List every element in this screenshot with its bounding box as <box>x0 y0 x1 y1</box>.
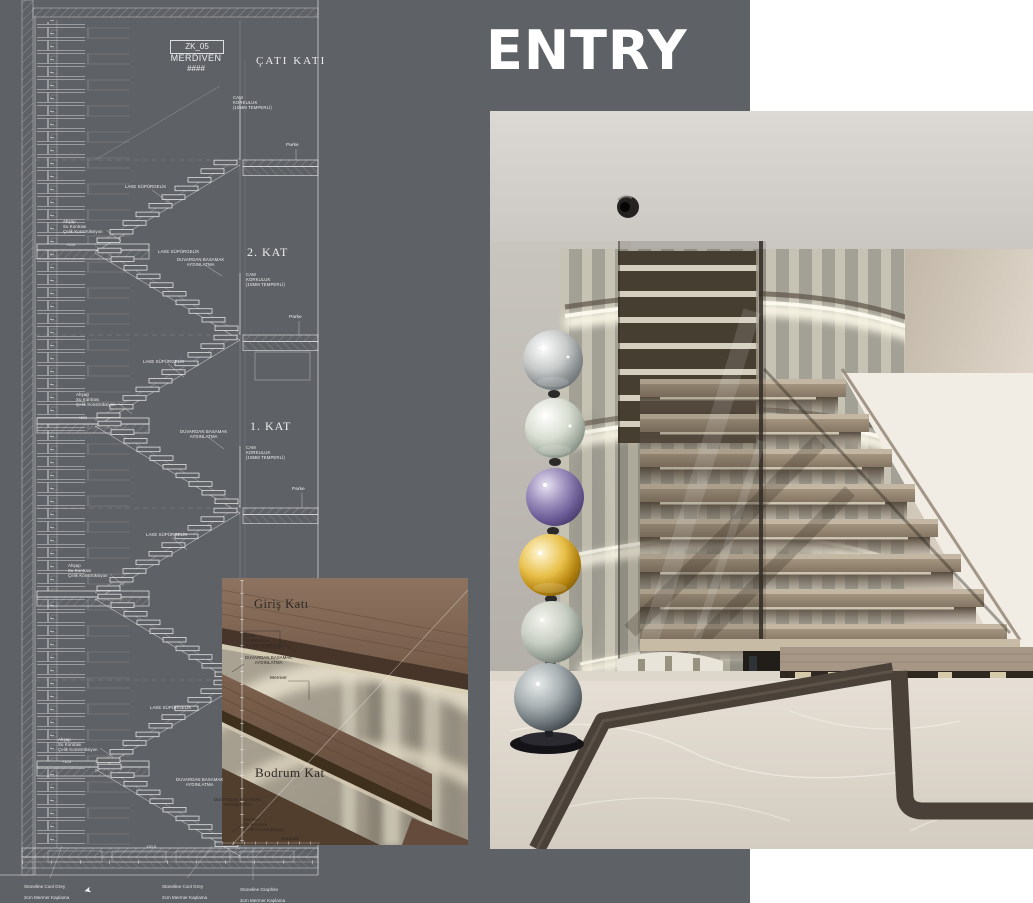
presentation-board: ENTRY ZK_05 MERDIVEN #### ÇATI KATI 2. K… <box>0 0 1033 903</box>
material-caption: Stoneline Graphite 2cm Mermer Kaplama <box>240 881 285 903</box>
annotation-glass-railing: CAM KORKULUK (10MM TEMPERLİ) <box>246 445 285 460</box>
caption-line: Stoneline Cool Grey <box>24 884 65 889</box>
caption-line: 2cm Mermer Kaplama <box>240 898 285 903</box>
page-title: ENTRY <box>486 24 688 78</box>
annotation-step-lighting: DUVARDAN BASAMAK AYDINLATMA <box>245 655 292 665</box>
annotation-step-lighting: DUVARDAN BASAMAK AYDINLATMA <box>176 777 223 787</box>
caption-line: 2cm Mermer Kaplama <box>24 895 69 900</box>
floor-label-bodrum-kat: Bodrum Kat <box>255 766 325 781</box>
material-label-seramik: Seramik <box>281 837 299 843</box>
material-label-parke: Parke <box>289 315 302 321</box>
annotation-skirting: LAKE SÜPÜRGELİK <box>143 359 184 364</box>
annotation-wood-structure: Ahşap Su Kontrası Çelik Konstrüksiyon <box>76 392 116 407</box>
annotation-step-lighting: DUVARDAN BASAMAK AYDINLATMA <box>177 257 224 267</box>
caption-line: Stoneline Graphite <box>240 887 278 892</box>
caption-line: 2cm Mermer Kaplama <box>162 895 207 900</box>
floor-label-2-kat: 2. KAT <box>247 246 288 260</box>
annotation-skirting: LAKE SÜPÜRGELİK <box>146 532 187 537</box>
elevation-mark: +103 <box>78 416 87 421</box>
annotation-wood-structure: Ahşap Su Kontrası Çelik Konstrüksiyon <box>68 563 108 578</box>
entry-staircase-photo <box>490 111 1033 849</box>
material-caption: Stoneline Cool Grey 2cm Mermer Kaplama <box>162 878 207 900</box>
annotation-glass-railing: CAM KORKULUK (10MM TEMPERLİ) <box>233 95 272 110</box>
annotation-skirting: LAKE SÜPÜRGELİK <box>150 705 191 710</box>
material-caption: Stoneline Cool Grey 2cm Mermer Kaplama <box>24 878 69 900</box>
floor-label-cati-kati: ÇATI KATI <box>256 55 326 68</box>
caption-line: Stoneline Cool Grey <box>162 884 203 889</box>
elevation-mark: +103 <box>66 243 75 248</box>
drawing-sheet-number: #### <box>160 64 232 73</box>
material-label-parke: Parke <box>286 143 299 149</box>
material-label-parke: Parke <box>292 487 305 493</box>
material-label-mermer: Mermer <box>270 676 287 682</box>
annotation-step-lighting: DUVARDAN BASAMAK AYDINLATMA <box>180 429 227 439</box>
annotation-marble-structure: Mermer Su Kontrası Çelik Konstrüksiyon <box>244 817 284 832</box>
floor-label-1-kat: 1. KAT <box>250 420 291 434</box>
annotation-skirting: LAKE SÜPÜRGELİK <box>158 249 199 254</box>
annotation-step-lighting: DUVARDAN BASAMAK AYDINLATMA <box>214 797 261 807</box>
annotation-wood-structure: Ahşap Su Kontrası Çelik Konstrüksiyon <box>63 219 103 234</box>
drawing-name: MERDIVEN <box>160 53 232 63</box>
annotation-glass-railing: CAM KORKULUK (10MM TEMPERLİ) <box>245 633 284 648</box>
annotation-glass-railing: CAM KORKULUK (10MM TEMPERLİ) <box>246 272 285 287</box>
annotation-skirting: LAKE SÜPÜRGELİK <box>125 184 166 189</box>
dimension-label: 130,5 <box>146 845 156 850</box>
annotation-wood-structure: Ahşap Su Kontrası Çelik Konstrüksiyon <box>58 737 98 752</box>
floor-label-giris-kati: Giriş Katı <box>254 597 309 611</box>
elevation-mark: +103 <box>62 760 71 765</box>
drawing-code-box: ZK_05 <box>170 40 224 54</box>
